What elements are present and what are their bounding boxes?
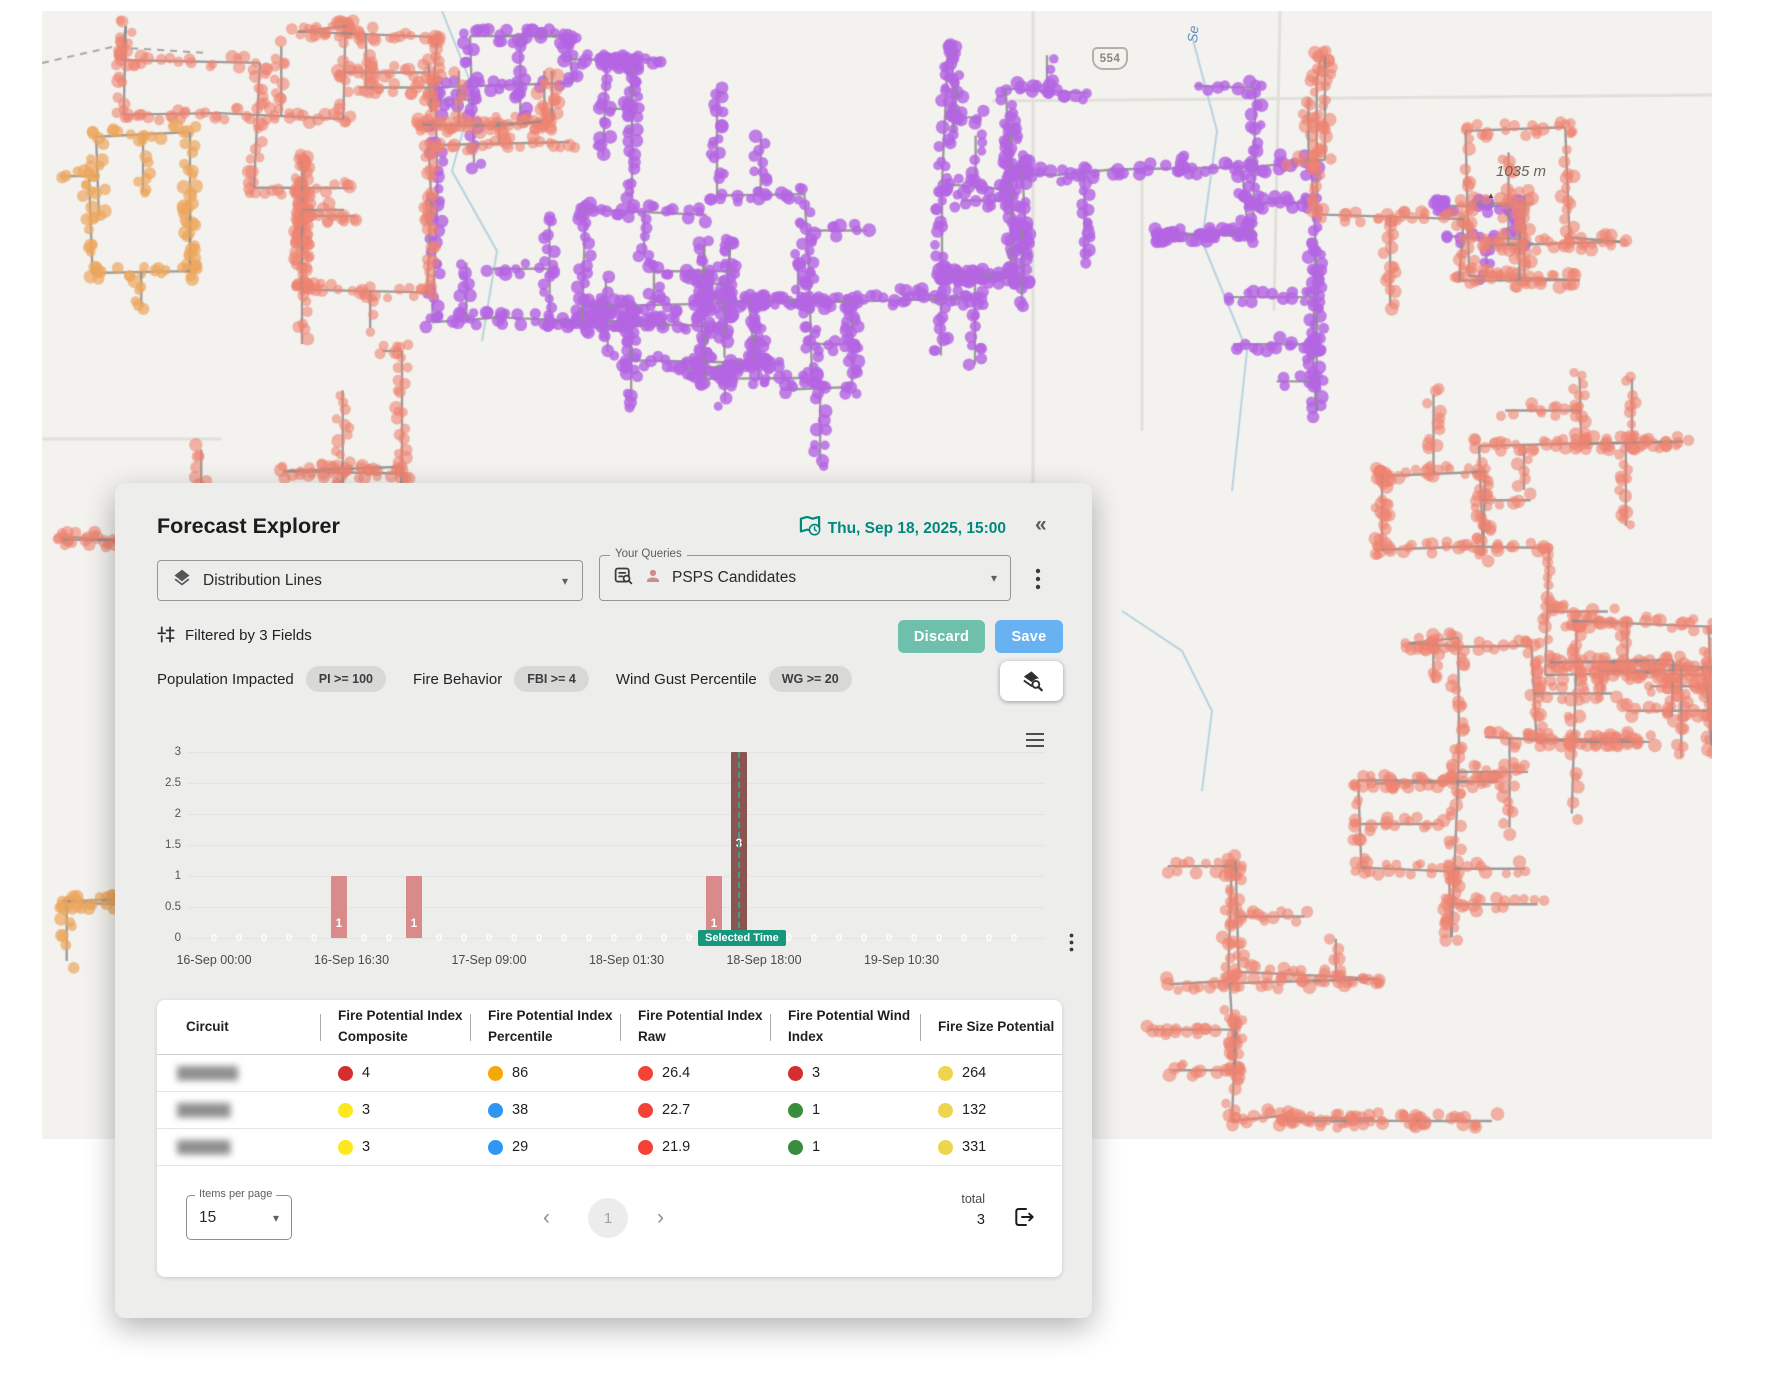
layers-icon — [172, 568, 192, 593]
metric-value: 26.4 — [662, 1065, 690, 1081]
status-dot — [338, 1140, 353, 1155]
chart-y-tick-label: 2.5 — [155, 777, 181, 789]
status-dot — [638, 1140, 653, 1155]
metric-cell-4: 264 — [920, 1065, 1062, 1081]
filter-summary: Filtered by 3 Fields — [185, 627, 312, 644]
page-title: Forecast Explorer — [157, 514, 340, 539]
bar-zero-label: 0 — [629, 932, 649, 944]
export-icon[interactable] — [1009, 1203, 1039, 1233]
results-table-card: CircuitFire Potential IndexCompositeFire… — [157, 1000, 1062, 1277]
metric-cell-1: 29 — [470, 1139, 620, 1155]
status-dot — [338, 1066, 353, 1081]
status-dot — [938, 1140, 953, 1155]
collapse-panel-icon[interactable]: « — [1035, 513, 1047, 537]
bar-zero-label: 0 — [529, 932, 549, 944]
metric-value: 3 — [362, 1102, 370, 1118]
status-dot — [788, 1066, 803, 1081]
selected-datetime[interactable]: Thu, Sep 18, 2025, 15:00 — [799, 516, 1006, 541]
bar-zero-label: 0 — [679, 932, 699, 944]
circuit-name-blurred: ███████ — [177, 1103, 230, 1117]
selected-time-dashed-line — [738, 752, 740, 938]
chart-gridline — [187, 907, 1045, 908]
bar-zero-label: 0 — [279, 932, 299, 944]
circuit-cell: ███████ — [157, 1140, 320, 1154]
forecast-explorer-panel: Forecast Explorer Thu, Sep 18, 2025, 15:… — [115, 483, 1092, 1318]
circuit-cell: ████████ — [157, 1066, 320, 1080]
metric-value: 1 — [812, 1139, 820, 1155]
chart-gridline — [187, 845, 1045, 846]
metric-value: 22.7 — [662, 1102, 690, 1118]
layer-select-value: Distribution Lines — [203, 572, 322, 590]
bar-zero-label: 0 — [1004, 932, 1024, 944]
chart-y-tick-label: 1 — [155, 870, 181, 882]
bar-zero-label: 0 — [804, 932, 824, 944]
chart-y-tick-label: 3 — [155, 746, 181, 758]
metric-cell-3: 3 — [770, 1065, 920, 1081]
chevron-down-icon: ▾ — [991, 571, 997, 585]
bar-zero-label: 0 — [854, 932, 874, 944]
column-header-4: Fire Potential WindIndex — [770, 1006, 920, 1048]
chart-x-tick-label: 18-Sep 01:30 — [577, 953, 677, 967]
metric-value: 132 — [962, 1102, 986, 1118]
metric-cell-2: 26.4 — [620, 1065, 770, 1081]
selected-datetime-label: Thu, Sep 18, 2025, 15:00 — [828, 520, 1006, 538]
metric-cell-4: 331 — [920, 1139, 1062, 1155]
header-divider — [620, 1014, 621, 1041]
circuit-cell: ███████ — [157, 1103, 320, 1117]
bar-value-label: 1 — [706, 918, 722, 930]
bar-zero-label: 0 — [254, 932, 274, 944]
column-header-2: Fire Potential IndexPercentile — [470, 1006, 620, 1048]
metric-value: 264 — [962, 1065, 986, 1081]
filter-field-name-1: Fire Behavior — [413, 671, 502, 688]
status-dot — [488, 1066, 503, 1081]
tune-filter-icon — [157, 625, 176, 649]
bar-zero-label: 0 — [929, 932, 949, 944]
chart-y-tick-label: 0 — [155, 932, 181, 944]
chart-x-tick-label: 16-Sep 16:30 — [302, 953, 402, 967]
bar-zero-label: 0 — [829, 932, 849, 944]
table-row[interactable]: ████████48626.43264 — [157, 1055, 1062, 1092]
circuit-name-blurred: ███████ — [177, 1140, 230, 1154]
total-label: total — [857, 1192, 985, 1206]
header-divider — [470, 1014, 471, 1041]
filter-chip-1[interactable]: FBI >= 4 — [514, 666, 589, 692]
column-header-0: Circuit — [157, 1017, 320, 1038]
metric-value: 1 — [812, 1102, 820, 1118]
metric-cell-3: 1 — [770, 1139, 920, 1155]
bar-value-label: 1 — [406, 918, 422, 930]
chart-y-tick-label: 2 — [155, 808, 181, 820]
chart-gridline — [187, 814, 1045, 815]
table-header-row: CircuitFire Potential IndexCompositeFire… — [157, 1000, 1062, 1055]
circuit-name-blurred: ████████ — [177, 1066, 237, 1080]
query-select-label: Your Queries — [610, 548, 687, 560]
bar-zero-label: 0 — [654, 932, 674, 944]
bar-zero-label: 0 — [229, 932, 249, 944]
status-dot — [638, 1103, 653, 1118]
screen: 554 Se 1035 m ▲ Forecast Explorer Thu, S… — [0, 0, 1790, 1376]
column-header-3: Fire Potential IndexRaw — [620, 1006, 770, 1048]
bar-zero-label: 0 — [479, 932, 499, 944]
column-header-5: Fire Size Potential — [920, 1017, 1062, 1038]
metric-cell-0: 4 — [320, 1065, 470, 1081]
current-page-button[interactable]: 1 — [588, 1198, 628, 1238]
bar-zero-label: 0 — [454, 932, 474, 944]
status-dot — [638, 1066, 653, 1081]
status-dot — [788, 1140, 803, 1155]
person-icon — [644, 567, 662, 590]
chart-x-tick-label: 18-Sep 18:00 — [714, 953, 814, 967]
layer-select[interactable]: Distribution Lines ▾ — [157, 560, 583, 601]
chart-gridline — [187, 752, 1045, 753]
selected-time-badge: Selected Time — [698, 930, 786, 946]
save-button[interactable]: Save — [995, 620, 1063, 653]
bar-zero-label: 0 — [504, 932, 524, 944]
query-select-value: PSPS Candidates — [672, 569, 796, 587]
bar-zero-label: 0 — [904, 932, 924, 944]
chart-x-tick-label: 16-Sep 00:00 — [164, 953, 264, 967]
metric-value: 3 — [812, 1065, 820, 1081]
metric-cell-2: 22.7 — [620, 1102, 770, 1118]
chart-x-tick-label: 19-Sep 10:30 — [852, 953, 952, 967]
items-per-page-select[interactable]: Items per page 15 ▾ — [186, 1195, 292, 1240]
bar-zero-label: 0 — [429, 932, 449, 944]
prev-page-icon[interactable]: ‹ — [543, 1206, 550, 1230]
metric-cell-0: 3 — [320, 1102, 470, 1118]
metric-cell-2: 21.9 — [620, 1139, 770, 1155]
total-count: total 3 — [857, 1192, 985, 1228]
status-dot — [338, 1103, 353, 1118]
header-divider — [320, 1014, 321, 1041]
metric-cell-1: 86 — [470, 1065, 620, 1081]
saved-query-icon — [613, 565, 634, 591]
time-series-bar-chart[interactable]: 00.511.522.53000001001000000000001300000… — [155, 731, 1060, 971]
chart-y-tick-label: 1.5 — [155, 839, 181, 851]
items-per-page-value: 15 — [199, 1209, 216, 1227]
filter-chip-0[interactable]: PI >= 100 — [306, 666, 386, 692]
metric-cell-3: 1 — [770, 1102, 920, 1118]
chart-menu-icon[interactable] — [1025, 732, 1045, 753]
bar-zero-label: 0 — [204, 932, 224, 944]
chart-gridline — [187, 876, 1045, 877]
status-dot — [488, 1103, 503, 1118]
metric-value: 3 — [362, 1139, 370, 1155]
header-divider — [920, 1014, 921, 1041]
bar-zero-label: 0 — [379, 932, 399, 944]
chevron-down-icon: ▾ — [562, 574, 568, 588]
chevron-down-icon: ▾ — [273, 1211, 279, 1225]
metric-value: 86 — [512, 1065, 528, 1081]
query-menu-kebab-icon[interactable] — [1035, 568, 1041, 595]
total-value: 3 — [857, 1212, 985, 1228]
metric-value: 38 — [512, 1102, 528, 1118]
header-divider — [770, 1014, 771, 1041]
table-row[interactable]: ███████32921.91331 — [157, 1129, 1062, 1166]
column-header-1: Fire Potential IndexComposite — [320, 1006, 470, 1048]
metric-cell-0: 3 — [320, 1139, 470, 1155]
chart-y-tick-label: 0.5 — [155, 901, 181, 913]
table-row[interactable]: ███████33822.71132 — [157, 1092, 1062, 1129]
chart-gridline — [187, 783, 1045, 784]
bar-zero-label: 0 — [879, 932, 899, 944]
next-page-icon[interactable]: › — [657, 1206, 664, 1230]
filter-chip-2[interactable]: WG >= 20 — [769, 666, 852, 692]
status-dot — [938, 1103, 953, 1118]
status-dot — [788, 1103, 803, 1118]
bar-zero-label: 0 — [604, 932, 624, 944]
metric-cell-4: 132 — [920, 1102, 1062, 1118]
bar-zero-label: 0 — [354, 932, 374, 944]
metric-value: 29 — [512, 1139, 528, 1155]
chart-x-tick-label: 17-Sep 09:00 — [439, 953, 539, 967]
bar-zero-label: 0 — [579, 932, 599, 944]
filter-field-name-0: Population Impacted — [157, 671, 294, 688]
items-per-page-label: Items per page — [195, 1188, 276, 1200]
bar-zero-label: 0 — [954, 932, 974, 944]
bar-zero-label: 0 — [979, 932, 999, 944]
metric-value: 4 — [362, 1065, 370, 1081]
bar-zero-label: 0 — [554, 932, 574, 944]
query-select[interactable]: Your Queries PSPS Candidates ▾ — [599, 555, 1011, 601]
bar-zero-label: 0 — [304, 932, 324, 944]
metric-value: 331 — [962, 1139, 986, 1155]
chart-more-kebab-icon[interactable] — [1069, 933, 1074, 957]
filter-field-name-2: Wind Gust Percentile — [616, 671, 757, 688]
status-dot — [938, 1066, 953, 1081]
discard-button[interactable]: Discard — [898, 620, 985, 653]
status-dot — [488, 1140, 503, 1155]
map-clock-icon — [799, 516, 821, 541]
filter-chips-row: Population ImpactedPI >= 100Fire Behavio… — [157, 664, 879, 694]
search-on-map-button[interactable] — [1000, 661, 1063, 701]
metric-value: 21.9 — [662, 1139, 690, 1155]
metric-cell-1: 38 — [470, 1102, 620, 1118]
bar-value-label: 1 — [331, 918, 347, 930]
